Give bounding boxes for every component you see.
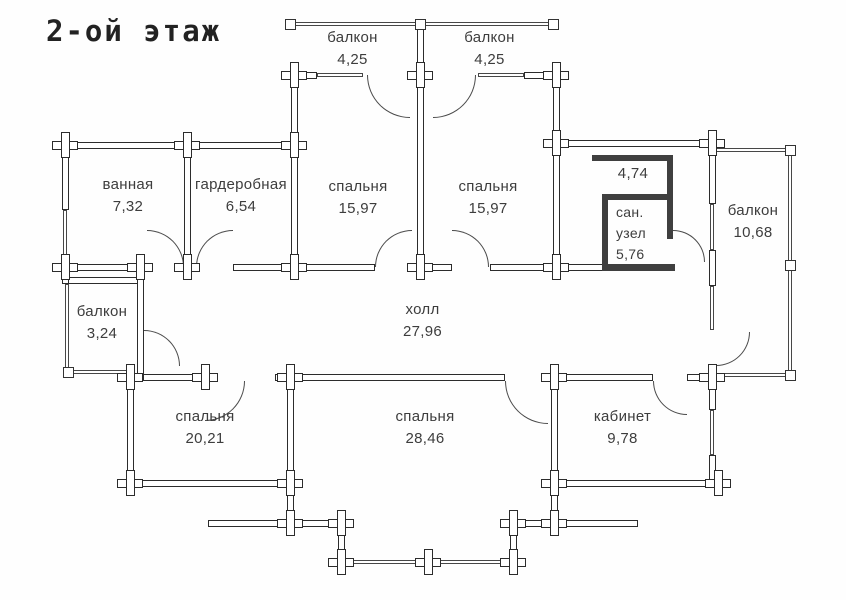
room-name: спальня [370, 406, 480, 428]
room-label-bedroom-sw: спальня 20,21 [150, 406, 260, 450]
room-label-balcony-top-left: балкон 4,25 [300, 27, 405, 71]
rail-post [785, 145, 796, 156]
room-name: ванная [73, 174, 183, 196]
room-area: 6,54 [184, 196, 298, 218]
room-label-hall: холл 27,96 [370, 299, 475, 343]
room-label-lobby-small: 4,74 [606, 163, 660, 185]
room-area: 27,96 [370, 321, 475, 343]
rail-post [785, 370, 796, 381]
room-label-wc: сан. узел 5,76 [616, 202, 666, 265]
room-name: балкон [70, 301, 134, 323]
room-name: балкон [300, 27, 405, 49]
door-swing-arc [452, 230, 489, 267]
rail-post [785, 260, 796, 271]
room-area: 15,97 [304, 198, 412, 220]
room-area: 10,68 [721, 222, 785, 244]
room-label-study: кабинет 9,78 [570, 406, 675, 450]
room-name: холл [370, 299, 475, 321]
room-label-balcony-west: балкон 3,24 [70, 301, 134, 345]
room-name: балкон [437, 27, 542, 49]
door-swing-arc [716, 332, 750, 366]
room-name: гардеробная [184, 174, 298, 196]
room-label-bathroom: ванная 7,32 [73, 174, 183, 218]
room-area: 15,97 [432, 198, 544, 220]
door-swing-arc [673, 230, 705, 262]
door-swing-arc [433, 75, 476, 118]
room-area: 5,76 [616, 244, 666, 265]
room-area: 4,25 [300, 49, 405, 71]
room-label-balcony-east: балкон 10,68 [721, 200, 785, 244]
room-name: спальня [150, 406, 260, 428]
rail-post [285, 19, 296, 30]
room-label-bedroom-nw: спальня 15,97 [304, 176, 412, 220]
room-label-balcony-top-right: балкон 4,25 [437, 27, 542, 71]
rail-post [63, 367, 74, 378]
room-label-bedroom-ne: спальня 15,97 [432, 176, 544, 220]
door-swing-arc [505, 381, 548, 424]
room-name: кабинет [570, 406, 675, 428]
room-area: 7,32 [73, 196, 183, 218]
room-name: спальня [432, 176, 544, 198]
rail-post [415, 19, 426, 30]
door-swing-arc [375, 230, 412, 267]
door-swing-arc [196, 230, 233, 267]
door-swing-arc [147, 230, 184, 267]
rail-post [548, 19, 559, 30]
room-name: балкон [721, 200, 785, 222]
room-area: 28,46 [370, 428, 480, 450]
room-area: 3,24 [70, 323, 134, 345]
room-area: 4,74 [606, 163, 660, 185]
room-name: спальня [304, 176, 412, 198]
floor-plan: 2-ой этаж балкон 4,25 балкон 4,25 ванная… [0, 0, 846, 600]
door-swing-arc [144, 330, 180, 366]
room-label-bedroom-s: спальня 28,46 [370, 406, 480, 450]
room-name: сан. узел [616, 202, 666, 244]
door-swing-arc [367, 75, 410, 118]
room-area: 9,78 [570, 428, 675, 450]
room-area: 4,25 [437, 49, 542, 71]
room-area: 20,21 [150, 428, 260, 450]
floor-title: 2-ой этаж [46, 14, 221, 48]
room-label-wardrobe: гардеробная 6,54 [184, 174, 298, 218]
